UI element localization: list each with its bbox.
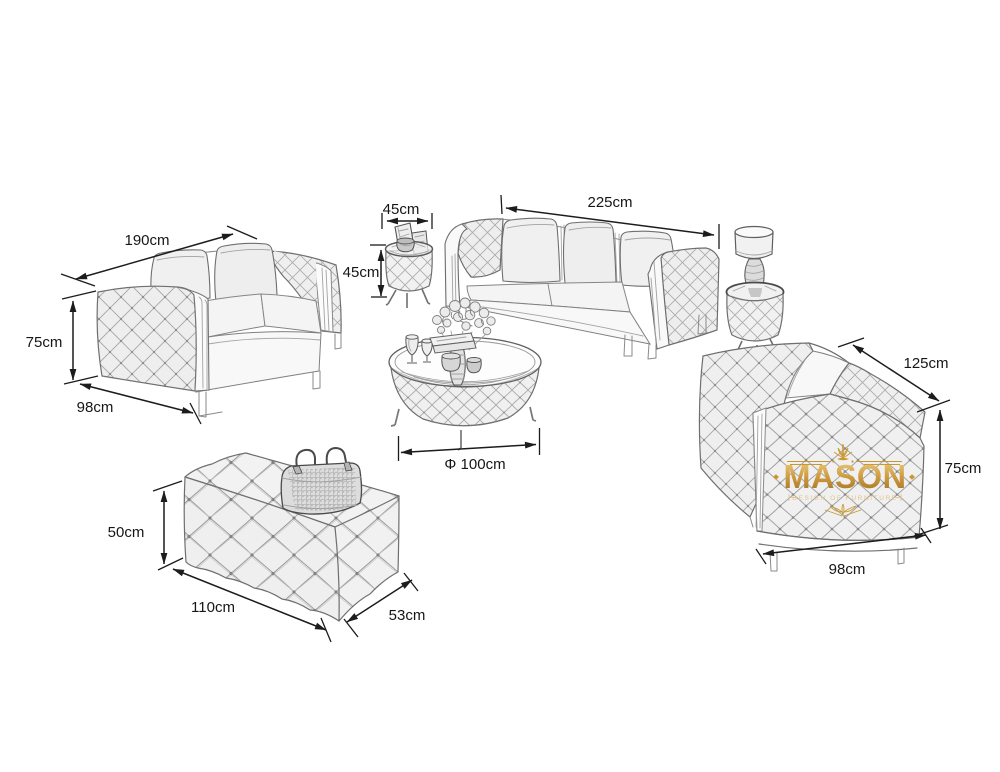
svg-text:DESIGN OF FURNITURE: DESIGN OF FURNITURE [792,495,898,502]
svg-text:53cm: 53cm [389,607,426,624]
svg-text:125cm: 125cm [903,355,948,372]
svg-text:Φ 100cm: Φ 100cm [444,456,505,473]
svg-text:45cm: 45cm [343,264,380,281]
svg-text:50cm: 50cm [108,524,145,541]
svg-text:75cm: 75cm [26,334,63,351]
svg-text:110cm: 110cm [191,599,235,616]
svg-text:98cm: 98cm [77,399,114,416]
svg-text:190cm: 190cm [124,232,169,249]
svg-text:98cm: 98cm [829,561,866,578]
svg-text:75cm: 75cm [945,460,982,477]
svg-text:45cm: 45cm [383,201,420,218]
svg-text:225cm: 225cm [587,194,632,211]
svg-text:MASON: MASON [784,458,907,495]
